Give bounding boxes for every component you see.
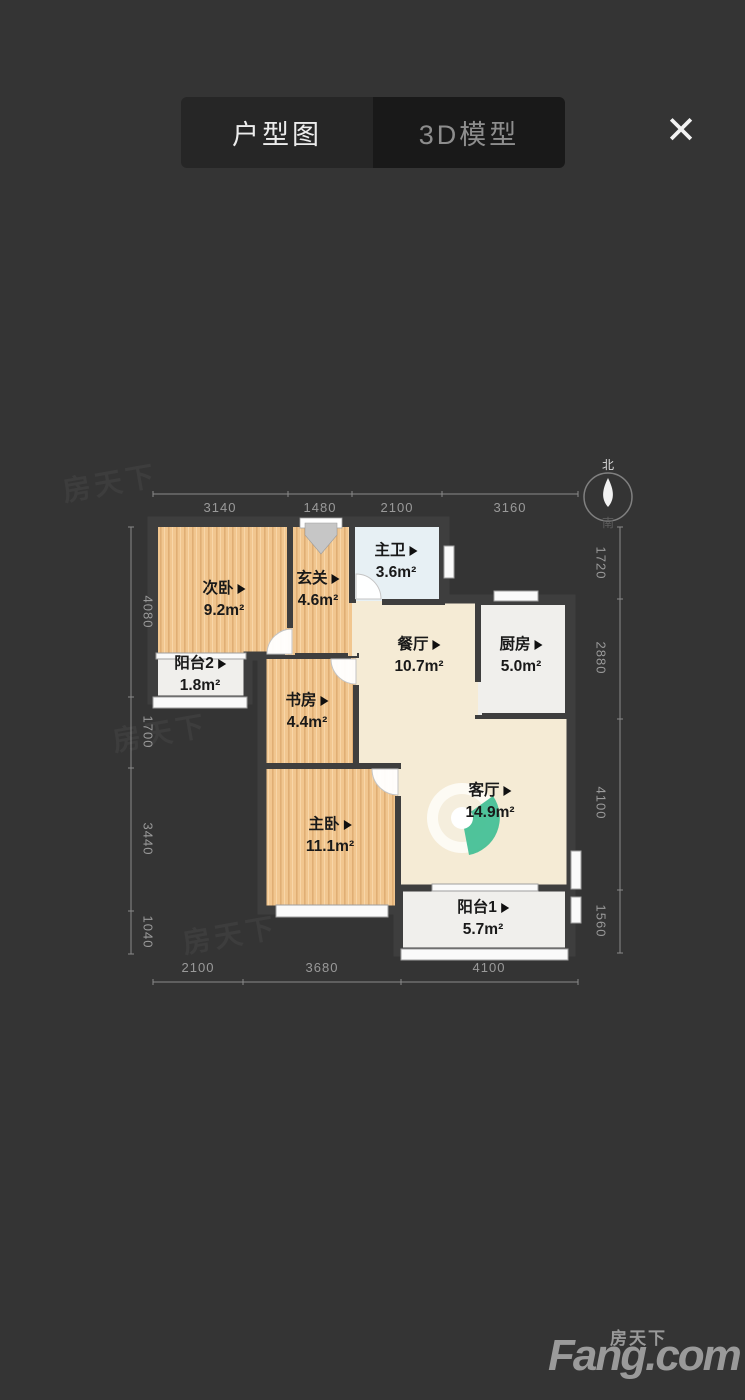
room-name: 客厅 xyxy=(465,780,514,802)
window-master-bedroom xyxy=(276,905,388,917)
room-name: 餐厅 xyxy=(394,634,443,656)
room-area: 3.6m² xyxy=(374,562,417,584)
dim-top-2: 2100 xyxy=(381,500,414,515)
arrow-right-icon xyxy=(504,786,512,796)
dim-right-2: 4100 xyxy=(594,787,609,820)
dim-top-3: 3160 xyxy=(494,500,527,515)
room-name: 阳台1 xyxy=(457,897,509,919)
room-area: 9.2m² xyxy=(202,600,245,622)
dim-right-1: 2880 xyxy=(594,642,609,675)
window-balcony1-east xyxy=(571,897,581,923)
room-name: 主卧 xyxy=(306,814,354,836)
arrow-right-icon xyxy=(433,640,441,650)
window-kitchen xyxy=(494,591,538,601)
dim-right-3: 1560 xyxy=(594,905,609,938)
room-area: 1.8m² xyxy=(174,675,226,697)
room-label-living[interactable]: 客厅 14.9m² xyxy=(465,780,514,824)
arrow-right-icon xyxy=(218,659,226,669)
window-balcony1 xyxy=(401,949,568,960)
arrow-right-icon xyxy=(501,903,509,913)
room-area: 5.0m² xyxy=(499,656,542,678)
room-area: 5.7m² xyxy=(457,919,509,941)
room-name: 主卫 xyxy=(374,540,417,562)
floorplan-canvas xyxy=(0,0,745,1400)
dim-left-3: 1040 xyxy=(141,916,156,949)
dim-bottom-1: 3680 xyxy=(306,960,339,975)
arrow-right-icon xyxy=(344,820,352,830)
room-label-secondary-bedroom[interactable]: 次卧 9.2m² xyxy=(202,578,245,622)
close-icon[interactable]: ✕ xyxy=(653,103,709,159)
dim-left-1: 1700 xyxy=(141,716,156,749)
room-label-dining[interactable]: 餐厅 10.7m² xyxy=(394,634,443,678)
dim-left-2: 3440 xyxy=(141,823,156,856)
window-master-bath xyxy=(444,546,454,578)
dim-left-0: 4080 xyxy=(141,596,156,629)
room-label-kitchen[interactable]: 厨房 5.0m² xyxy=(499,634,542,678)
room-name: 厨房 xyxy=(499,634,542,656)
dim-bottom-0: 2100 xyxy=(182,960,215,975)
room-area: 4.4m² xyxy=(285,712,328,734)
room-label-study[interactable]: 书房 4.4m² xyxy=(285,690,328,734)
dim-bottom-2: 4100 xyxy=(473,960,506,975)
window-living-east xyxy=(571,851,581,889)
tab-floorplan[interactable]: 户型图 xyxy=(181,97,373,168)
view-toggle: 户型图 3D模型 xyxy=(181,97,565,168)
room-name: 玄关 xyxy=(296,568,339,590)
slider-living-balcony xyxy=(432,884,538,891)
room-name: 书房 xyxy=(285,690,328,712)
room-label-balcony1[interactable]: 阳台1 5.7m² xyxy=(457,897,509,941)
room-name: 次卧 xyxy=(202,578,245,600)
arrow-right-icon xyxy=(238,584,246,594)
room-area: 14.9m² xyxy=(465,802,514,824)
arrow-right-icon xyxy=(535,640,543,650)
compass-north-label: 北 xyxy=(602,456,614,473)
room-label-master-bath[interactable]: 主卫 3.6m² xyxy=(374,540,417,584)
fang-logo-en: Fang.com xyxy=(548,1334,740,1378)
room-label-entry[interactable]: 玄关 4.6m² xyxy=(296,568,339,612)
room-label-master-bedroom[interactable]: 主卧 11.1m² xyxy=(306,814,354,858)
arrow-right-icon xyxy=(410,546,418,556)
dim-top-0: 3140 xyxy=(204,500,237,515)
fang-logo: 房天下 Fang.com xyxy=(548,1326,740,1392)
arrow-right-icon xyxy=(332,574,340,584)
compass-south-label: 南 xyxy=(602,514,614,531)
room-area: 4.6m² xyxy=(296,590,339,612)
room-area: 10.7m² xyxy=(394,656,443,678)
floorplan-viewer-page: 房天下 房天下 房天下 xyxy=(0,0,745,1400)
arrow-right-icon xyxy=(321,696,329,706)
room-name: 阳台2 xyxy=(174,653,226,675)
dim-right-0: 1720 xyxy=(594,547,609,580)
room-label-balcony2[interactable]: 阳台2 1.8m² xyxy=(174,653,226,697)
compass-needle-icon xyxy=(603,478,613,507)
room-area: 11.1m² xyxy=(306,836,354,858)
window-balcony2 xyxy=(153,697,247,708)
dim-top-1: 1480 xyxy=(304,500,337,515)
tab-3d-model[interactable]: 3D模型 xyxy=(373,97,565,168)
